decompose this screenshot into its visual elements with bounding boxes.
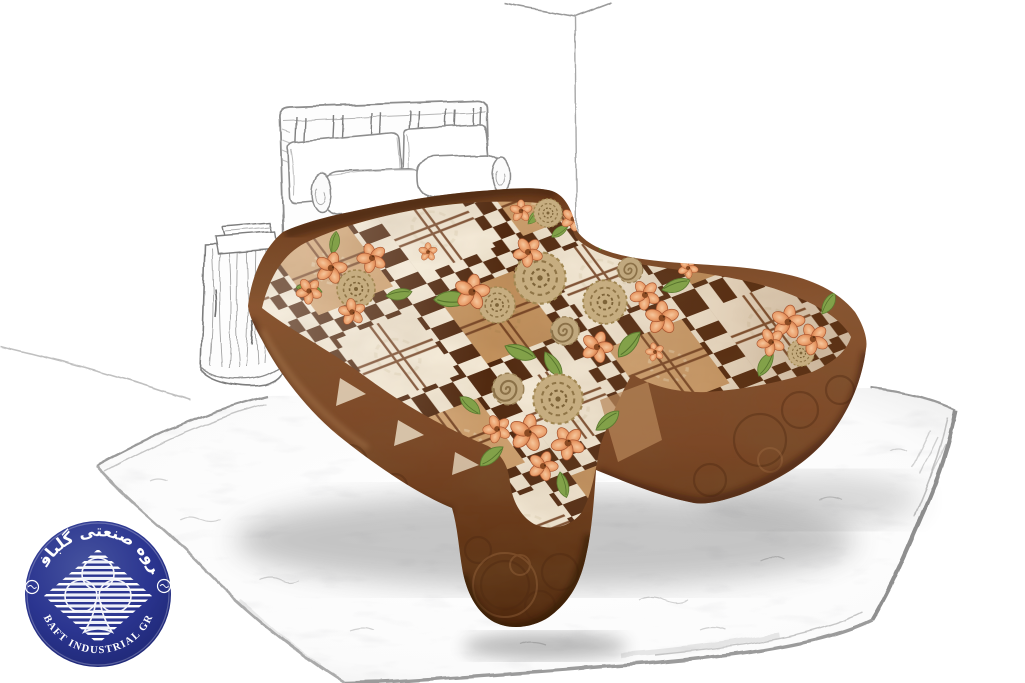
wall-corner-vertical bbox=[575, 16, 577, 238]
wall-edge-right bbox=[575, 2, 612, 16]
scene-canvas: گروه صنعتی گلبافت GOLBAFT INDUSTRIAL GRO… bbox=[0, 0, 1025, 683]
floor-line bbox=[0, 346, 190, 400]
brand-logo-seal: گروه صنعتی گلبافت GOLBAFT INDUSTRIAL GRO… bbox=[0, 0, 171, 667]
bolster-left-cap bbox=[312, 173, 332, 213]
product-scene: گروه صنعتی گلبافت GOLBAFT INDUSTRIAL GRO… bbox=[0, 0, 1025, 683]
wall-edge-left bbox=[504, 3, 575, 16]
